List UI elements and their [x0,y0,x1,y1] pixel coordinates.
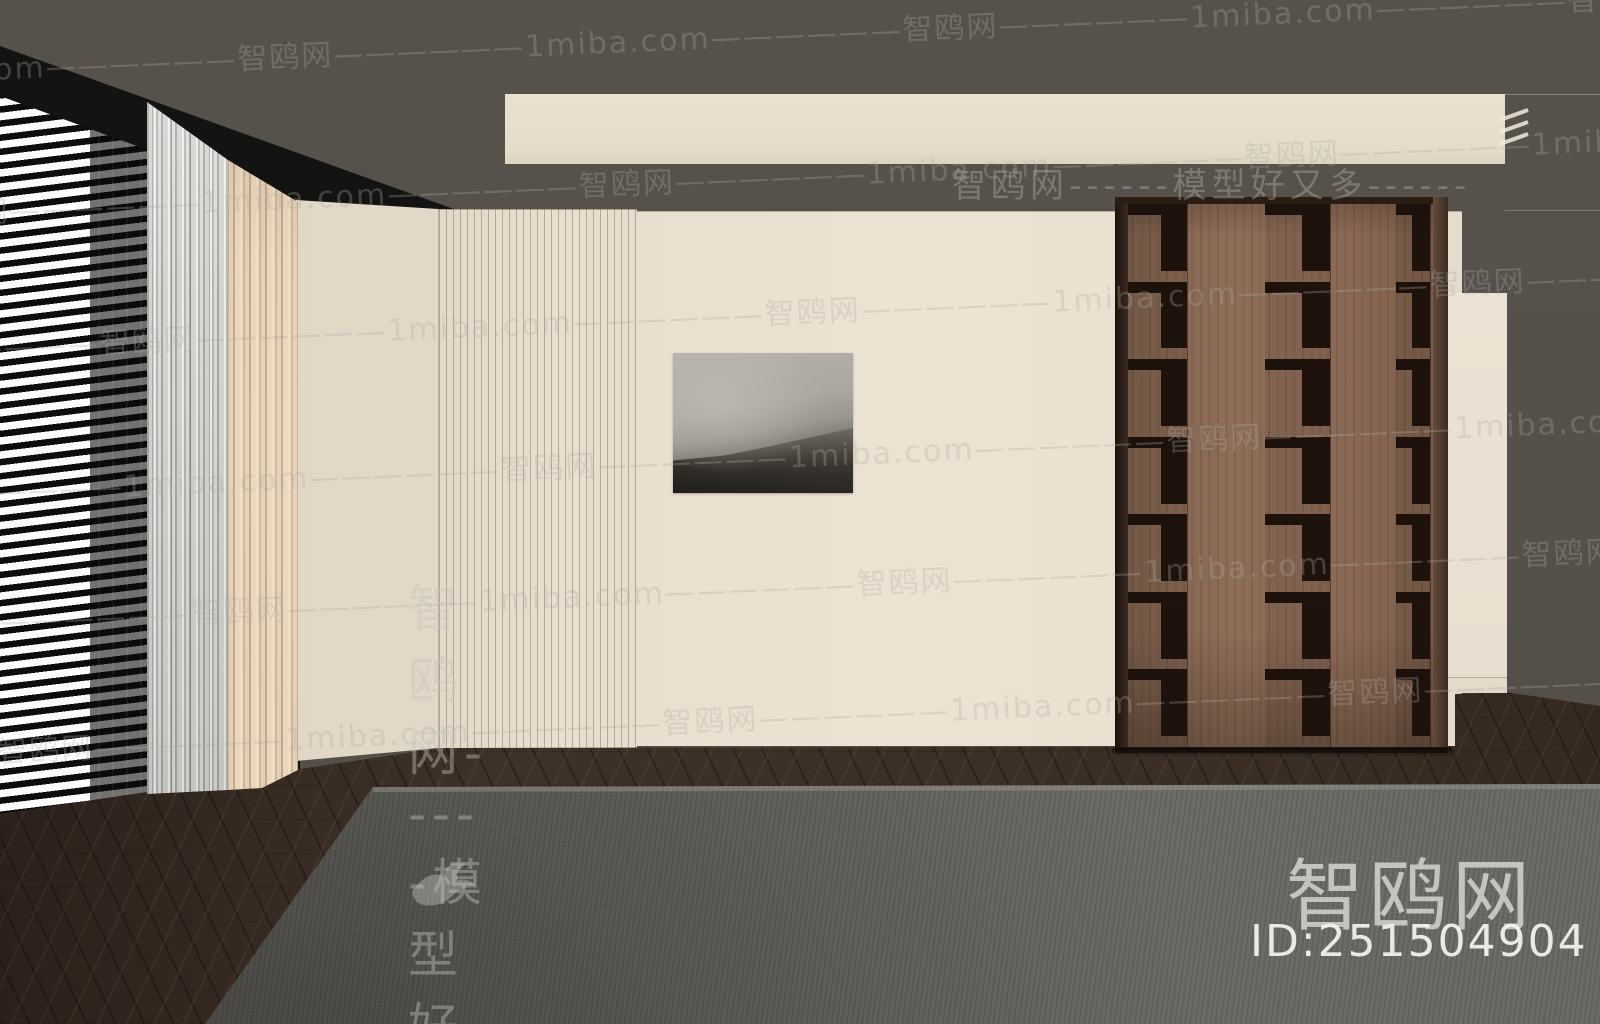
niche-side-shadow [1412,603,1430,659]
interior-render: 1miba.com——————智鸥网——————1miba.com——————智… [0,0,1600,1024]
cabinet-niche [1396,204,1430,282]
cabinet-niche [1396,282,1430,360]
cabinet-niche [1128,282,1187,360]
niche-side-shadow [1302,525,1330,581]
cabinet-floor-shadow [1112,748,1452,757]
cabinet-panel-seam [1330,197,1331,753]
niche-shelf-shadow [1265,282,1330,293]
niche-side-shadow [1302,215,1330,271]
watermark-id: ID:251504904 [1250,916,1588,967]
ceiling-bulkhead [505,94,1505,164]
niche-shelf-shadow [1396,592,1430,603]
cabinet-niche [1396,592,1430,670]
niche-side-shadow [1161,370,1187,426]
niche-side-shadow [1412,215,1430,271]
artwork-fog [673,353,853,493]
cabinet-niche [1265,359,1330,437]
niche-side-shadow [1412,448,1430,504]
side-panel-seam [1448,677,1507,678]
niche-side-shadow [1412,680,1430,736]
niche-side-shadow [1302,603,1330,659]
niche-shelf-shadow [1128,669,1187,680]
niche-shelf-shadow [1265,514,1330,525]
niche-side-shadow [1161,215,1187,271]
niche-shelf-shadow [1128,592,1187,603]
cabinet-niche [1396,437,1430,515]
niche-side-shadow [1161,448,1187,504]
cabinet-niche [1396,359,1430,437]
niche-shelf-shadow [1396,669,1430,680]
display-cabinet [1115,197,1448,753]
cabinet-panel-seam [1430,197,1431,753]
niche-shelf-shadow [1396,437,1430,448]
bulkhead-edge-line [1505,94,1600,95]
cabinet-niche [1265,437,1330,515]
cabinet-niche [1265,514,1330,592]
cabinet-niche [1128,514,1187,592]
niche-shelf-shadow [1265,669,1330,680]
niche-shelf-shadow [1128,359,1187,370]
niche-shelf-shadow [1128,282,1187,293]
cabinet-niche [1128,592,1187,670]
cabinet-niche [1396,514,1430,592]
niche-shelf-shadow [1265,359,1330,370]
niche-side-shadow [1302,448,1330,504]
cabinet-niche [1265,592,1330,670]
niche-shelf-shadow [1396,359,1430,370]
diagonal-stripes-icon [1498,108,1532,148]
niche-side-shadow [1161,680,1187,736]
cabinet-niche [1396,669,1430,747]
niche-shelf-shadow [1128,437,1187,448]
cabinet-niche [1265,204,1330,282]
wall-top-line [1505,210,1600,211]
cabinet-niche [1128,204,1187,282]
niche-shelf-shadow [1128,514,1187,525]
cabinet-niche [1128,359,1187,437]
niche-side-shadow [1302,293,1330,349]
niche-shelf-shadow [1396,514,1430,525]
cabinet-panel-seam [1187,197,1188,753]
niche-side-shadow [1161,293,1187,349]
cabinet-niche [1265,669,1330,747]
cabinet-niche [1265,282,1330,360]
niche-shelf-shadow [1265,437,1330,448]
niche-side-shadow [1412,293,1430,349]
cabinet-niche [1128,437,1187,515]
cabinet-frame-right [1433,197,1448,753]
niche-side-shadow [1302,370,1330,426]
niche-side-shadow [1161,603,1187,659]
niche-side-shadow [1412,370,1430,426]
niche-side-shadow [1412,525,1430,581]
wall-artwork [673,353,853,493]
niche-shelf-shadow [1396,282,1430,293]
cabinet-niche [1128,669,1187,747]
watermark-mid-banner: 智鸥网------模型好又多------ [952,158,1471,207]
watermark-bottom-text: 智鸥网-----模型好又多 [408,569,488,1024]
niche-side-shadow [1302,680,1330,736]
niche-shelf-shadow [1265,592,1330,603]
cabinet-frame-left [1115,197,1128,753]
side-panel [1448,293,1507,693]
niche-side-shadow [1161,525,1187,581]
